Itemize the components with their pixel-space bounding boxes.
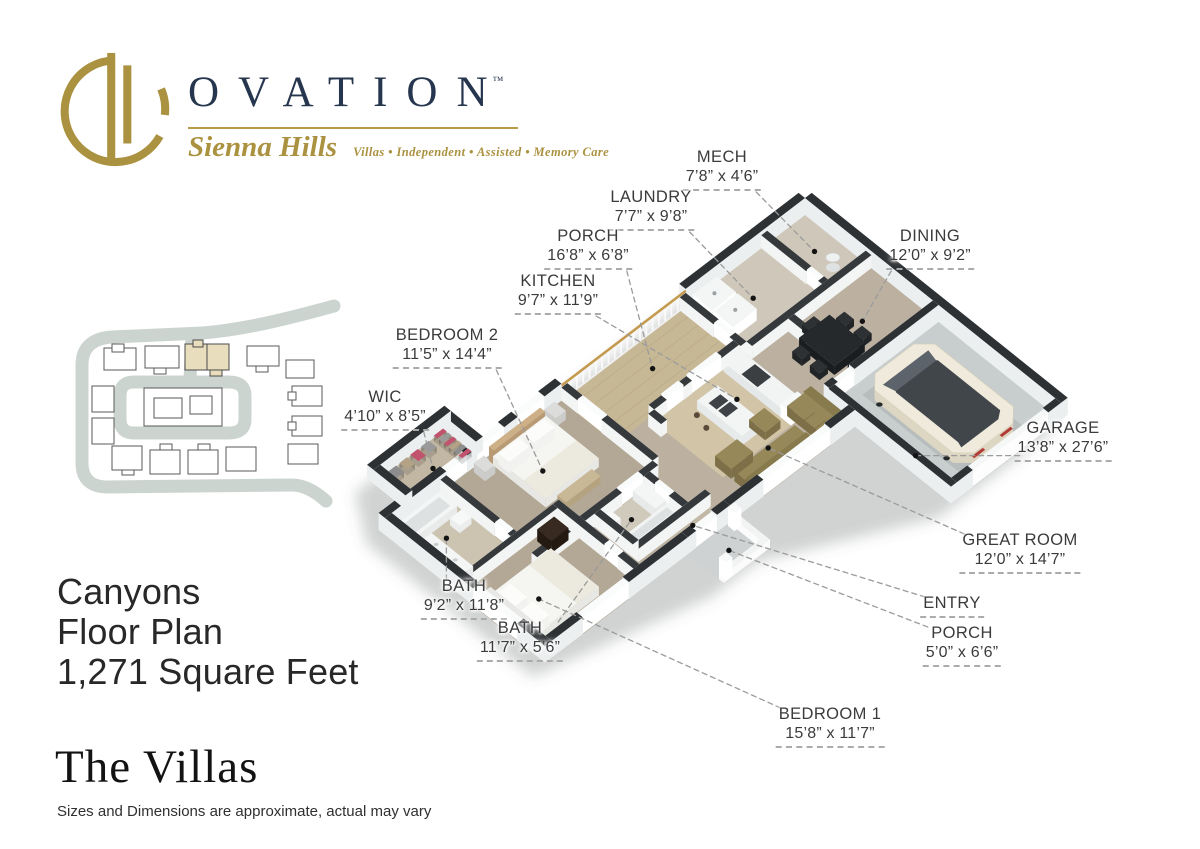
room-label-mech: MECH7’8” x 4’6” [683, 148, 761, 191]
room-dimensions: 12’0” x 9’2” [889, 246, 971, 265]
room-name: BEDROOM 2 [396, 326, 499, 345]
room-label-wic: WIC4’10” x 8’5” [341, 388, 429, 431]
room-label-bath_hall: BATH11’7” x 5’6” [477, 619, 563, 662]
room-dimensions: 16’8” x 6’8” [547, 246, 629, 265]
room-name: PORCH [926, 624, 998, 643]
room-dimensions: 11’7” x 5’6” [480, 638, 560, 657]
room-name: DINING [889, 227, 971, 246]
room-dimensions: 12’0” x 14’7” [962, 550, 1077, 569]
room-name: PORCH [547, 227, 629, 246]
room-dimensions: 15’8” x 11’7” [779, 724, 882, 743]
room-name: BATH [480, 619, 560, 638]
room-label-garage: GARAGE13’8” x 27’6” [1015, 419, 1112, 462]
room-name: BEDROOM 1 [779, 705, 882, 724]
room-dimensions: 7’8” x 4’6” [686, 167, 758, 186]
room-name: ENTRY [923, 594, 981, 613]
room-label-laundry: LAUNDRY7’7” x 9’8” [607, 188, 694, 231]
room-dimensions: 5’0” x 6’6” [926, 643, 998, 662]
room-dimensions: 11’5” x 14’4” [396, 345, 499, 364]
room-label-bedroom1: BEDROOM 115’8” x 11’7” [776, 705, 885, 748]
room-dimensions: 9’2” x 11’8” [424, 596, 504, 615]
room-label-dining: DINING12’0” x 9’2” [886, 227, 974, 270]
room-label-porch_se: PORCH5’0” x 6’6” [923, 624, 1001, 667]
room-name: GREAT ROOM [962, 531, 1077, 550]
room-name: KITCHEN [518, 272, 598, 291]
room-label-porch_nw: PORCH16’8” x 6’8” [544, 227, 632, 270]
room-name: GARAGE [1018, 419, 1109, 438]
room-label-kitchen: KITCHEN9’7” x 11’9” [515, 272, 601, 315]
room-dimensions: 13’8” x 27’6” [1018, 438, 1109, 457]
room-dimensions: 7’7” x 9’8” [610, 207, 691, 226]
room-label-bedroom2: BEDROOM 211’5” x 14’4” [393, 326, 502, 369]
room-name: MECH [686, 148, 758, 167]
page: OVATION™ Sienna Hills Villas • Independe… [0, 0, 1200, 849]
room-label-entry: ENTRY [920, 594, 984, 618]
room-name: BATH [424, 577, 504, 596]
room-dimensions: 9’7” x 11’9” [518, 291, 598, 310]
room-dimensions: 4’10” x 8’5” [344, 407, 426, 426]
room-label-bath_master: BATH9’2” x 11’8” [421, 577, 507, 620]
room-label-great_room: GREAT ROOM12’0” x 14’7” [959, 531, 1080, 574]
room-name: WIC [344, 388, 426, 407]
room-name: LAUNDRY [610, 188, 691, 207]
